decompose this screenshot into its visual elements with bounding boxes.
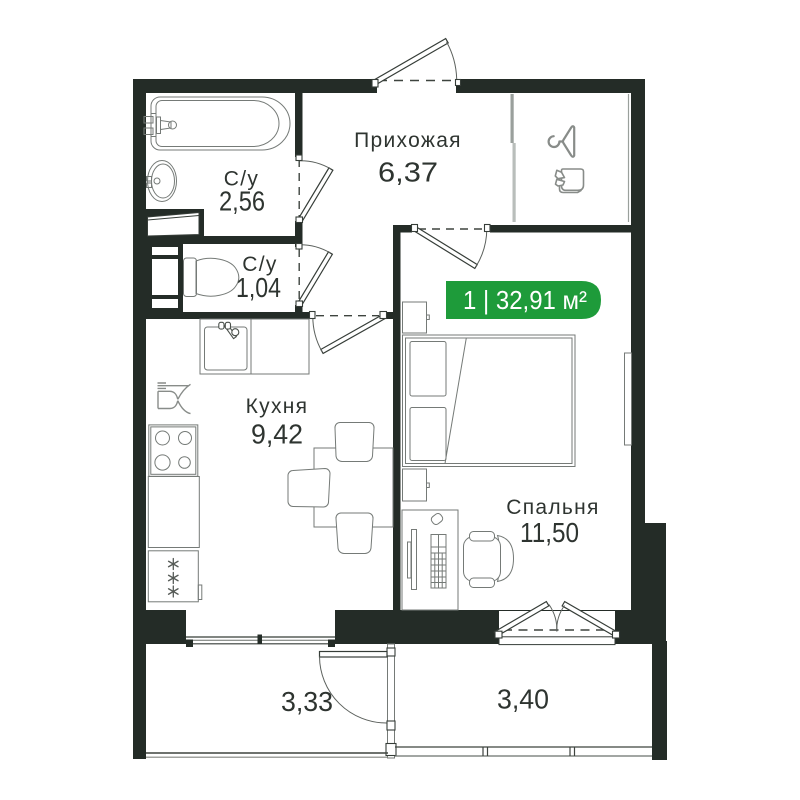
svg-text:3,40: 3,40 — [497, 684, 549, 715]
svg-text:6,37: 6,37 — [378, 157, 438, 188]
svg-text:1,04: 1,04 — [236, 272, 281, 303]
svg-text:2,56: 2,56 — [219, 186, 265, 217]
svg-text:Прихожая: Прихожая — [354, 129, 462, 152]
svg-text:Спальня: Спальня — [506, 496, 599, 519]
svg-text:3,33: 3,33 — [281, 686, 333, 717]
svg-text:11,50: 11,50 — [520, 517, 579, 548]
svg-text:Кухня: Кухня — [246, 395, 309, 418]
svg-text:9,42: 9,42 — [251, 419, 303, 450]
svg-text:1 | 32,91 м²: 1 | 32,91 м² — [463, 285, 587, 315]
